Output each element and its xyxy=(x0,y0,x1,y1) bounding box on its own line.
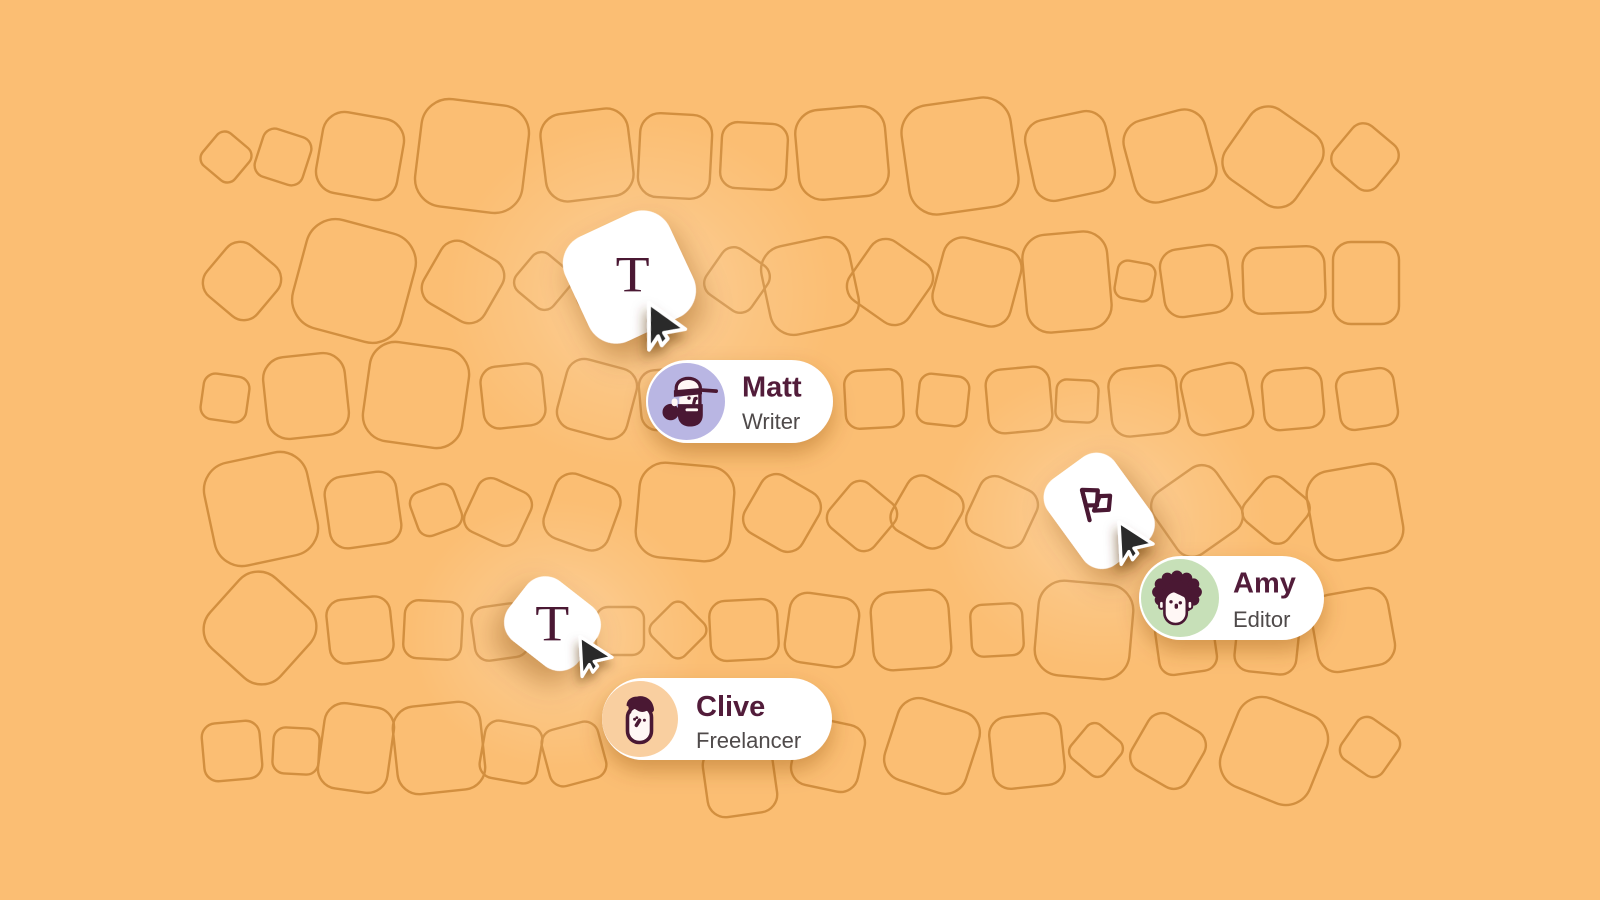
svg-text:Editor: Editor xyxy=(1233,607,1290,632)
svg-text:Freelancer: Freelancer xyxy=(696,728,801,753)
svg-text:Amy: Amy xyxy=(1233,568,1296,600)
svg-text:Matt: Matt xyxy=(742,372,802,404)
svg-text:Writer: Writer xyxy=(742,409,800,434)
svg-text:T: T xyxy=(535,597,569,653)
svg-text:T: T xyxy=(616,248,650,304)
svg-text:Clive: Clive xyxy=(696,691,765,723)
